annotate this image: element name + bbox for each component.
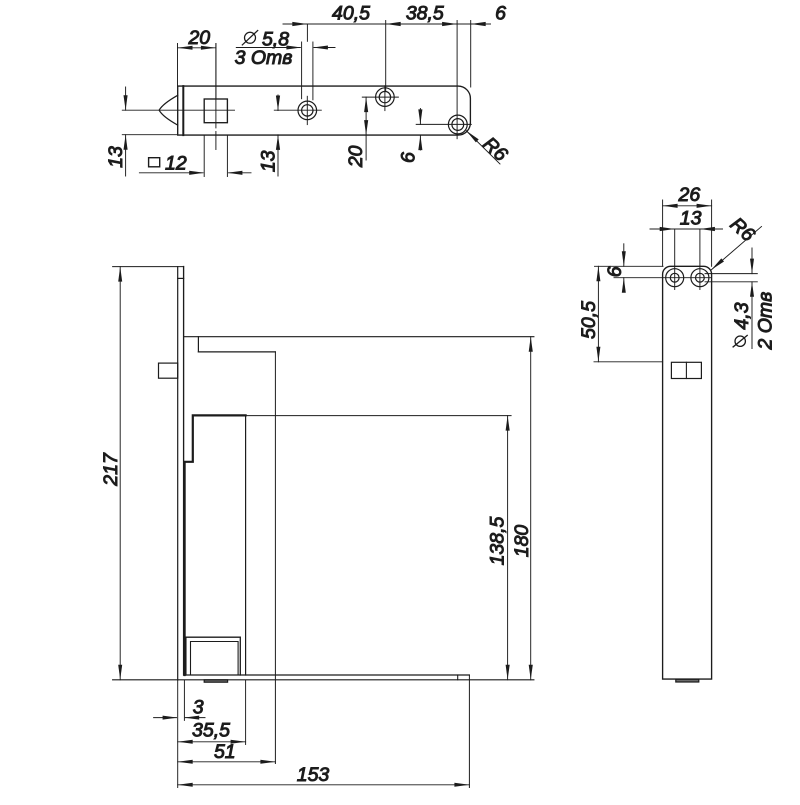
svg-text:51: 51: [214, 741, 236, 763]
svg-text:26: 26: [678, 184, 701, 206]
svg-text:13: 13: [258, 150, 280, 172]
svg-text:153: 153: [297, 764, 330, 786]
svg-text:3: 3: [193, 697, 204, 719]
svg-text:4,3: 4,3: [731, 302, 753, 329]
svg-text:2 Отв: 2 Отв: [755, 292, 777, 351]
svg-text:20: 20: [345, 145, 367, 168]
svg-text:50,5: 50,5: [578, 301, 600, 339]
svg-text:138,5: 138,5: [486, 516, 508, 565]
svg-text:6: 6: [604, 266, 626, 277]
svg-text:35,5: 35,5: [192, 719, 230, 741]
svg-text:13: 13: [680, 208, 702, 230]
svg-text:20: 20: [187, 27, 210, 49]
svg-text:217: 217: [100, 452, 122, 487]
svg-text:3 Отв: 3 Отв: [235, 47, 293, 69]
svg-text:6: 6: [398, 152, 420, 163]
svg-text:180: 180: [511, 525, 533, 558]
svg-text:6: 6: [495, 3, 506, 25]
svg-text:38,5: 38,5: [406, 3, 444, 25]
svg-text:40,5: 40,5: [332, 3, 370, 25]
svg-text:12: 12: [165, 152, 187, 174]
svg-text:13: 13: [105, 146, 127, 168]
